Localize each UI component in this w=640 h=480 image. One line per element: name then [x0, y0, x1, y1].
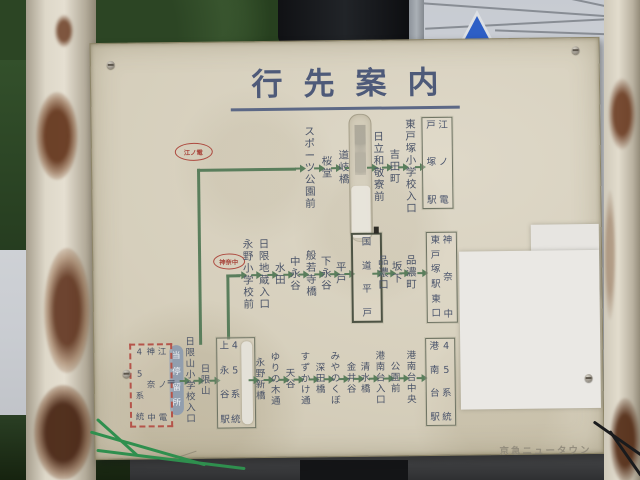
terminal-box-column: 上永谷駅: [219, 341, 230, 424]
bus-stop-char: 通: [271, 397, 281, 407]
terminal-box-column: 港南台駅: [429, 342, 439, 422]
legend-label: 神: [146, 348, 155, 357]
screw-icon: [572, 46, 580, 54]
bus-stop-char: 台: [407, 373, 417, 383]
bus-stop-char: 橋: [256, 391, 266, 401]
legend-column: 神奈中: [146, 348, 155, 422]
bus-stop-char: 港: [407, 351, 417, 361]
legend-label: 電: [159, 414, 168, 423]
terminal-box: 港南台駅45系統: [425, 338, 456, 426]
bus-stop-char: 公: [391, 362, 401, 372]
legend-label: 系: [136, 392, 145, 401]
equals-sign: ＝: [167, 375, 176, 388]
route-arrow-icon: [248, 379, 254, 382]
route-arrow-icon: [278, 378, 284, 381]
terminal-box-column: 45系統: [441, 342, 451, 422]
route-arrow-icon: [383, 377, 389, 380]
stop-name-label: 京急ニュータウン: [499, 442, 591, 457]
tape-patch: [459, 250, 601, 410]
rust-stain: [36, 92, 78, 180]
bus-stop-char: 谷: [286, 380, 296, 390]
bus-stop-char: 谷: [347, 385, 357, 395]
bus-stop-char: ず: [301, 364, 311, 374]
bus-stop-char: 山: [201, 387, 211, 397]
bus-stop-char: 前: [391, 384, 401, 394]
bus-stop-char: り: [271, 364, 281, 374]
terminal-box-label: 統: [442, 412, 452, 422]
terminal-box-label: 5: [232, 366, 238, 376]
bus-stop-char: 入: [376, 385, 386, 395]
bus-stop-char: 清: [361, 363, 371, 373]
legend-column: 45系統: [135, 348, 144, 422]
legend-label: 江: [158, 348, 167, 357]
black-post: [300, 460, 408, 480]
terminal-box-label: 駅: [220, 415, 230, 425]
terminal-box-label: 駅: [430, 412, 440, 422]
bus-stop-char: 中: [407, 384, 417, 394]
legend-label: ノ: [158, 381, 167, 390]
terminal-box-label: 5: [443, 365, 449, 375]
route-arrow-icon: [354, 377, 360, 380]
bus-stop-char: 港: [376, 352, 386, 362]
terminal-box-label: 南: [430, 365, 440, 375]
screw-icon: [107, 61, 115, 69]
bus-stop-char: 入: [186, 403, 196, 413]
route-arrow-icon: [417, 377, 423, 380]
route-arrow-icon: [339, 378, 345, 381]
bus-stop-char: く: [331, 385, 341, 395]
bus-stop-char: 日: [185, 337, 195, 347]
bus-stop-char: 南: [407, 362, 417, 372]
bus-stop-char: 口: [186, 414, 196, 424]
rust-stain: [34, 385, 92, 480]
rust-stain: [604, 190, 616, 320]
bus-stop-label: 港南台中央: [407, 351, 417, 405]
route-arrow-icon: [193, 379, 199, 382]
bus-stop-char: 校: [186, 392, 196, 402]
legend-label: 5: [137, 370, 143, 379]
bus-stop-char: 山: [186, 359, 196, 369]
legend-label: 統: [136, 414, 145, 423]
route-arrow-icon: [399, 377, 405, 380]
screw-icon: [122, 370, 130, 378]
legend-label: 4: [137, 349, 143, 358]
bus-stop-char: 学: [186, 381, 196, 391]
rust-stain: [608, 78, 636, 150]
terminal-box-label: 系: [231, 390, 241, 400]
terminal-box-label: 4: [443, 342, 449, 352]
bus-stop-char: 通: [301, 396, 311, 406]
sign-board: 行先案内 江ノ電スポーツ公園前桜堂道岐橋日立和敬寮前吉田町東戸塚小学校入口戸塚駅…: [89, 37, 604, 460]
terminal-box-column: 45系統: [230, 341, 241, 424]
bus-stop-sign-photo: 行先案内 江ノ電スポーツ公園前桜堂道岐橋日立和敬寮前吉田町東戸塚小学校入口戸塚駅…: [0, 0, 640, 480]
route-arrow-icon: [293, 378, 299, 381]
terminal-box-label: 系: [442, 389, 452, 399]
bus-stop-char: ゆ: [271, 353, 281, 363]
legend-label: 奈: [147, 381, 156, 390]
screw-icon: [585, 374, 593, 382]
bus-stop-char: み: [331, 352, 341, 362]
bus-stop-char: 深: [316, 363, 326, 373]
current-stop-label: 当: [172, 352, 181, 361]
terminal-box-label: 統: [231, 415, 241, 425]
bus-stop-char: 橋: [316, 385, 326, 395]
bus-stop-char: 南: [376, 363, 386, 373]
bus-stop-char: や: [331, 363, 341, 373]
rust-stain: [44, 248, 90, 373]
bus-stop-char: 木: [271, 386, 281, 396]
bus-stop-char: す: [301, 353, 311, 363]
bus-stop-char: 日: [201, 365, 211, 375]
bus-stop-char: 永: [256, 359, 266, 369]
terminal-box: 上永谷駅45系統: [216, 337, 256, 428]
bus-stop-char: け: [301, 385, 311, 395]
route-arrow-icon: [263, 378, 269, 381]
route-arrow-icon: [179, 379, 185, 382]
terminal-box-label: 港: [429, 342, 439, 352]
route-arrow-icon: [308, 378, 314, 381]
terminal-box-label: 永: [220, 366, 230, 376]
bus-stop-char: 限: [185, 348, 195, 358]
terminal-box-label: 台: [430, 389, 440, 399]
current-stop-label: 所: [173, 399, 182, 408]
route-arrow-icon: [368, 377, 374, 380]
route-arrow-icon: [209, 379, 215, 382]
tape-strip: [241, 341, 253, 424]
bus-stop-char: 口: [376, 395, 386, 405]
bus-stop-char: 金: [347, 363, 357, 373]
legend-label: 中: [147, 414, 156, 423]
route-arrow-icon: [323, 378, 329, 381]
bus-stop-char: ぼ: [331, 396, 341, 406]
rust-stain: [54, 14, 74, 48]
terminal-box-label: 谷: [220, 390, 230, 400]
utility-pole: [409, 0, 424, 44]
bus-stop-char: 央: [407, 395, 417, 405]
bus-stop-char: 橋: [361, 385, 371, 395]
terminal-box-label: 上: [219, 341, 229, 351]
terminal-box-label: 4: [232, 341, 238, 351]
bus-stop-char: 新: [256, 381, 266, 391]
